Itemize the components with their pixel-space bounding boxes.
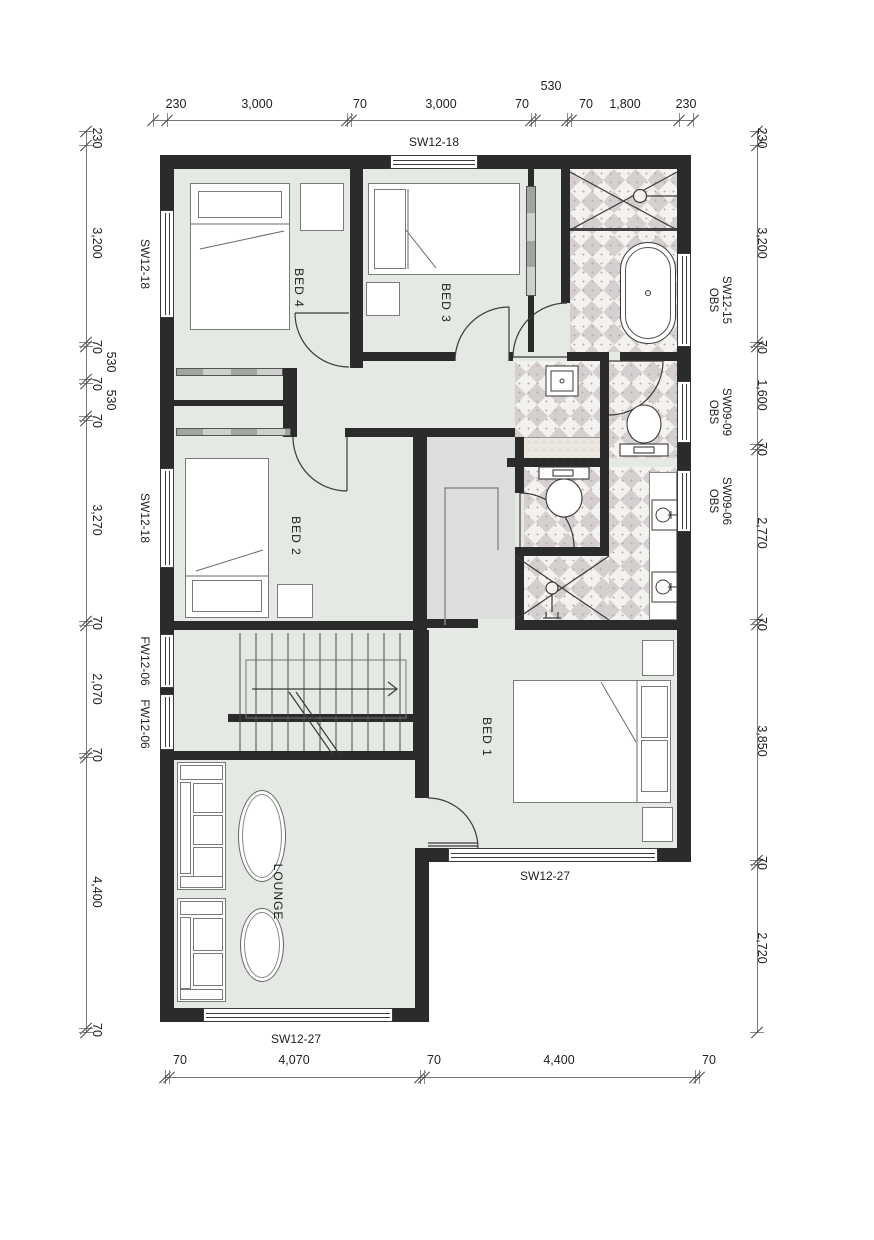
dim-label-left-0: 230 <box>90 128 104 149</box>
dim-label-left-11: 4,400 <box>90 876 104 907</box>
stairs-break-line <box>289 692 340 755</box>
door-bed2 <box>293 437 347 491</box>
stairs-treads <box>240 633 400 751</box>
window-label-left-3: FW12-06 <box>138 636 152 685</box>
dim-label-right-0: 230 <box>755 128 769 149</box>
window-code: SW09-06 <box>719 477 732 525</box>
dim-label-left-7: 3,270 <box>90 504 104 535</box>
dim-label-bottom-4: 70 <box>702 1053 716 1067</box>
dim-label-right-1: 3,200 <box>755 227 769 258</box>
window-label-top: SW12-18 <box>409 135 459 149</box>
tub-drain <box>646 291 651 296</box>
dim-label-right-9: 2,720 <box>755 932 769 963</box>
dim-label-top-4: 70 <box>515 97 529 111</box>
dim-label-left-6: 70 <box>90 414 104 428</box>
room-label-lounge: LOUNGE <box>271 864 285 921</box>
window-label-bottom-2: SW12-27 <box>271 1032 321 1046</box>
dim-label-left-4: 70 <box>90 377 104 391</box>
dim-line-top <box>153 120 693 121</box>
dim-label-top-0: 230 <box>166 97 187 111</box>
dim-label-top-3: 3,000 <box>425 97 456 111</box>
dim-label-left-9: 2,070 <box>90 673 104 704</box>
door-bed3 <box>455 307 509 361</box>
door-bed1 <box>428 798 478 848</box>
dim-label-right-2: 70 <box>755 340 769 354</box>
dim-line-bottom <box>165 1077 699 1078</box>
dim-label-right-7: 3,850 <box>755 725 769 756</box>
dim-label-top-7: 1,800 <box>609 97 640 111</box>
dim-label-top-6: 70 <box>579 97 593 111</box>
toilet-wc2 <box>539 467 589 517</box>
basin-ensuite-2 <box>652 572 677 602</box>
dim-label-left-3: 530 <box>104 352 118 373</box>
window-label-right-1: SW12-15 OBS <box>706 276 732 324</box>
dim-label-left-2: 70 <box>90 340 104 354</box>
dim-label-left-1: 3,200 <box>90 227 104 258</box>
door-bathroom <box>513 303 567 357</box>
dim-label-right-6: 70 <box>755 617 769 631</box>
dim-label-bottom-3: 4,400 <box>543 1053 574 1067</box>
window-code: SW12-15 <box>719 276 732 324</box>
dim-label-top-5: 530 <box>541 79 562 93</box>
window-label-left-4: FW12-06 <box>138 699 152 748</box>
room-label-bed2: BED 2 <box>289 516 303 556</box>
window-label-left-2: SW12-18 <box>138 493 152 543</box>
dim-label-right-4: 70 <box>755 442 769 456</box>
dim-label-left-10: 70 <box>90 748 104 762</box>
dim-label-bottom-2: 70 <box>427 1053 441 1067</box>
floorplan-canvas: BED 4 BED 3 BED 2 BED 1 LOUNGE SW12-18 S… <box>0 0 874 1240</box>
dim-label-top-1: 3,000 <box>241 97 272 111</box>
window-obs-tag: OBS <box>706 477 719 525</box>
dim-label-left-8: 70 <box>90 616 104 630</box>
dim-label-bottom-0: 70 <box>173 1053 187 1067</box>
dim-line-left <box>86 131 87 1032</box>
window-label-right-3: SW09-06 OBS <box>706 477 732 525</box>
stairs-direction-arrow <box>252 682 397 696</box>
room-label-bed1: BED 1 <box>480 717 494 757</box>
window-obs-tag: OBS <box>706 276 719 324</box>
window-label-right-2: SW09-09 OBS <box>706 388 732 436</box>
door-bed4 <box>295 313 349 367</box>
dim-label-top-8: 230 <box>676 97 697 111</box>
window-code: SW09-09 <box>719 388 732 436</box>
room-label-bed3: BED 3 <box>439 283 453 323</box>
window-label-left-1: SW12-18 <box>138 239 152 289</box>
room-label-bed4: BED 4 <box>292 268 306 308</box>
window-label-bottom-1: SW12-27 <box>520 869 570 883</box>
basin-nook <box>546 366 578 396</box>
shower-ensuite <box>515 556 609 620</box>
dim-label-left-5: 530 <box>104 390 118 411</box>
dim-label-left-12: 70 <box>90 1023 104 1037</box>
window-obs-tag: OBS <box>706 388 719 436</box>
dim-label-bottom-1: 4,070 <box>278 1053 309 1067</box>
dim-label-right-5: 2,770 <box>755 517 769 548</box>
shower-top <box>570 172 677 230</box>
wir-shelf-line <box>445 488 498 625</box>
dim-label-top-2: 70 <box>353 97 367 111</box>
dim-label-right-8: 70 <box>755 856 769 870</box>
basin-ensuite-1 <box>652 500 677 530</box>
dim-line-right <box>757 131 758 1032</box>
dim-label-right-3: 1,600 <box>755 379 769 410</box>
